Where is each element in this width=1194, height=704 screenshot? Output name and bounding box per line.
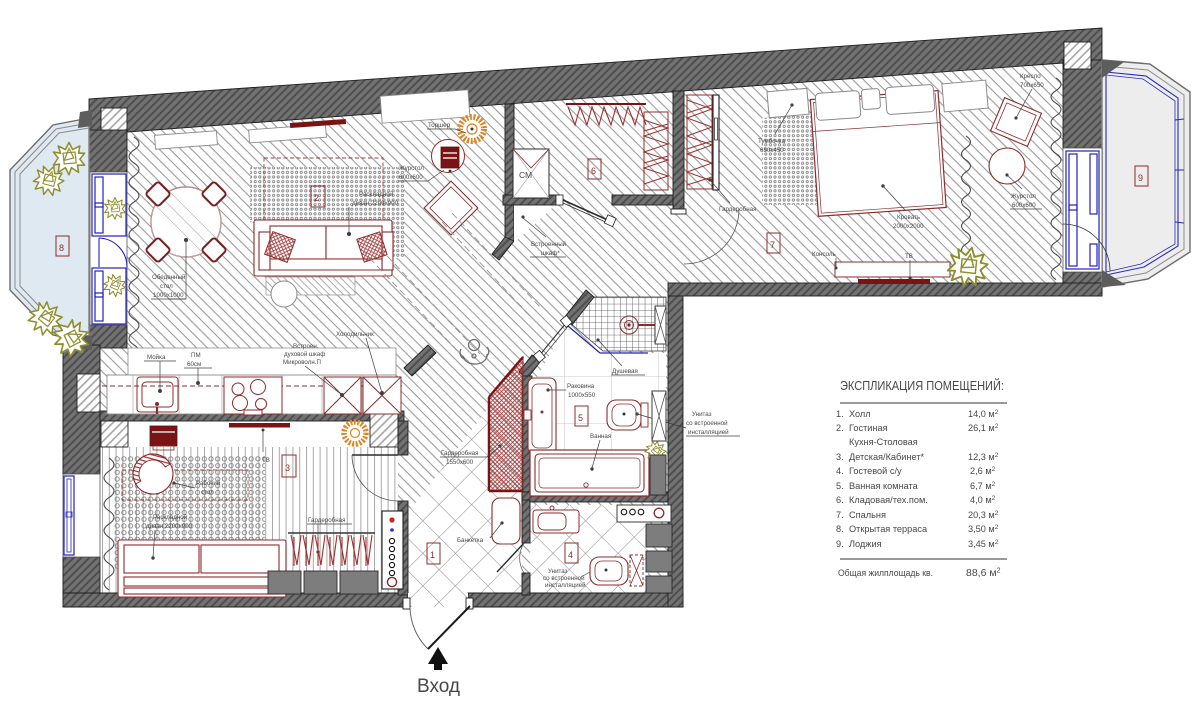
svg-text:Раскладной: Раскладной: [359, 191, 394, 198]
svg-text:88,6 м2: 88,6 м2: [966, 567, 1001, 579]
svg-text:5: 5: [578, 413, 583, 423]
svg-text:9.: 9.: [836, 539, 844, 549]
svg-text:650х450: 650х450: [760, 147, 784, 154]
svg-text:6.: 6.: [836, 495, 844, 505]
svg-text:Раскладной: Раскладной: [153, 514, 188, 521]
svg-text:Лоджия: Лоджия: [849, 539, 882, 549]
svg-text:7: 7: [770, 240, 775, 250]
svg-text:Тумбочка: Тумбочка: [758, 138, 786, 145]
svg-text:3.: 3.: [836, 452, 844, 462]
svg-text:Консоль: Консоль: [812, 251, 836, 258]
svg-text:Кладовая/тех.пом.: Кладовая/тех.пом.: [849, 495, 928, 505]
svg-text:Вход: Вход: [417, 676, 460, 697]
svg-text:Ванная: Ванная: [590, 433, 611, 440]
svg-text:стол: стол: [201, 489, 214, 496]
svg-text:26,1 м2: 26,1 м2: [968, 423, 999, 433]
svg-text:Мойка: Мойка: [147, 354, 166, 361]
svg-text:Кухня-Столовая: Кухня-Столовая: [849, 437, 918, 447]
svg-text:шкаф*: шкаф*: [541, 250, 560, 257]
svg-text:Открытая терраса: Открытая терраса: [849, 524, 928, 534]
svg-text:4.: 4.: [836, 466, 844, 476]
svg-text:Встроен.: Встроен.: [293, 343, 319, 350]
svg-text:инсталляцией: инсталляцией: [688, 429, 729, 436]
svg-text:1.: 1.: [836, 409, 844, 419]
svg-text:Торшер: Торшер: [428, 122, 451, 129]
svg-text:Унитаз: Унитаз: [548, 568, 568, 575]
svg-text:14,0 м2: 14,0 м2: [968, 409, 999, 419]
svg-text:3,50 м2: 3,50 м2: [968, 524, 999, 534]
svg-text:60см: 60см: [187, 361, 201, 368]
svg-text:Гардеробная: Гардеробная: [441, 450, 478, 457]
svg-text:600х600: 600х600: [399, 174, 423, 181]
svg-text:ЭКСПЛИКАЦИЯ ПОМЕЩЕНИЙ:: ЭКСПЛИКАЦИЯ ПОМЕЩЕНИЙ:: [840, 378, 1004, 393]
svg-text:Гардеробная: Гардеробная: [308, 517, 345, 524]
svg-text:Обеденный: Обеденный: [152, 274, 186, 281]
svg-text:Унитаз: Унитаз: [692, 411, 712, 418]
svg-text:1000х550: 1000х550: [568, 392, 596, 399]
svg-text:Общая жилплощадь кв.: Общая жилплощадь кв.: [838, 568, 933, 579]
svg-text:Микроволн.П: Микроволн.П: [283, 359, 321, 366]
svg-text:8.: 8.: [836, 524, 844, 534]
svg-text:диван 2200х900: диван 2200х900: [146, 523, 193, 530]
svg-text:1000х1000: 1000х1000: [153, 292, 184, 299]
svg-text:Кровать: Кровать: [897, 214, 920, 221]
svg-text:Спальня: Спальня: [849, 510, 886, 520]
svg-text:ПМ: ПМ: [191, 352, 201, 359]
svg-text:2000х2000: 2000х2000: [893, 223, 924, 230]
svg-text:6: 6: [591, 166, 596, 176]
svg-text:7.: 7.: [836, 510, 844, 520]
svg-text:инсталляцией: инсталляцией: [545, 582, 586, 589]
svg-text:Детская/Кабинет*: Детская/Кабинет*: [849, 452, 925, 462]
svg-text:20,3 м2: 20,3 м2: [968, 510, 999, 520]
svg-text:2.: 2.: [836, 423, 844, 433]
svg-text:Рабочий: Рабочий: [196, 480, 221, 487]
svg-text:1: 1: [430, 550, 435, 560]
svg-text:Банкетка: Банкетка: [457, 537, 484, 544]
svg-text:ТВ: ТВ: [905, 253, 913, 260]
svg-text:Ванная комната: Ванная комната: [849, 481, 919, 491]
svg-text:3: 3: [285, 463, 290, 473]
svg-text:духовой шкаф: духовой шкаф: [284, 351, 325, 358]
svg-text:Душевая: Душевая: [612, 368, 638, 375]
svg-text:2: 2: [314, 193, 319, 203]
svg-text:Холл: Холл: [849, 409, 871, 419]
svg-text:9: 9: [1138, 173, 1143, 183]
svg-text:Холодильник: Холодильник: [336, 331, 374, 338]
svg-text:4: 4: [568, 550, 573, 560]
svg-text:со встроенной: со встроенной: [686, 420, 728, 427]
svg-text:5.: 5.: [836, 481, 844, 491]
svg-text:со встроенной: со встроенной: [543, 575, 585, 582]
svg-text:1550х600: 1550х600: [446, 459, 474, 466]
svg-text:Гостиная: Гостиная: [849, 423, 888, 433]
svg-text:Встроенный: Встроенный: [531, 241, 567, 248]
svg-text:12,3 м2: 12,3 м2: [968, 452, 999, 462]
svg-text:Гардеробная: Гардеробная: [719, 206, 756, 213]
svg-text:стол: стол: [160, 283, 173, 290]
svg-text:8: 8: [59, 243, 64, 253]
svg-text:Раковина: Раковина: [567, 383, 595, 390]
svg-text:ТВ: ТВ: [262, 457, 270, 464]
svg-text:700х650: 700х650: [1020, 82, 1044, 89]
svg-text:СМ: СМ: [519, 170, 532, 180]
svg-text:Кресло: Кресло: [1020, 73, 1041, 80]
svg-text:Гостевой с/у: Гостевой с/у: [849, 466, 902, 476]
svg-text:Журстол: Журстол: [1011, 193, 1036, 200]
svg-text:Журстол: Журстол: [399, 165, 424, 172]
svg-text:диван 2200х900: диван 2200х900: [352, 200, 399, 207]
svg-text:3,45 м2: 3,45 м2: [968, 539, 999, 549]
svg-text:600х600: 600х600: [1012, 202, 1036, 209]
